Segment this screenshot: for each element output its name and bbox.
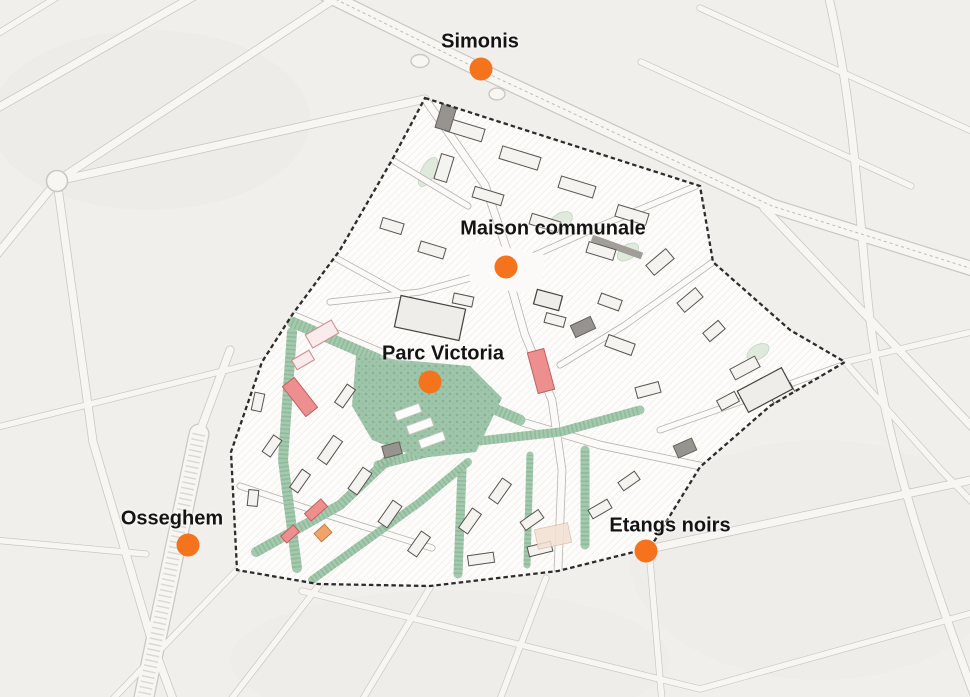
osseghem-station-dot: [177, 534, 200, 557]
label-osseghem: Osseghem: [121, 508, 223, 531]
etangs-noirs-station-dot: [635, 540, 658, 563]
simonis-station-dot: [470, 58, 493, 81]
label-simonis: Simonis: [441, 31, 519, 54]
label-parc-victoria: Parc Victoria: [382, 343, 504, 366]
maison-communale-station-dot: [495, 256, 518, 279]
parc-victoria-station-dot: [419, 371, 442, 394]
map-figure: Simonis Maison communale Parc Victoria O…: [0, 0, 970, 697]
label-etangs-noirs: Etangs noirs: [609, 515, 730, 538]
label-maison-communale: Maison communale: [460, 218, 646, 241]
